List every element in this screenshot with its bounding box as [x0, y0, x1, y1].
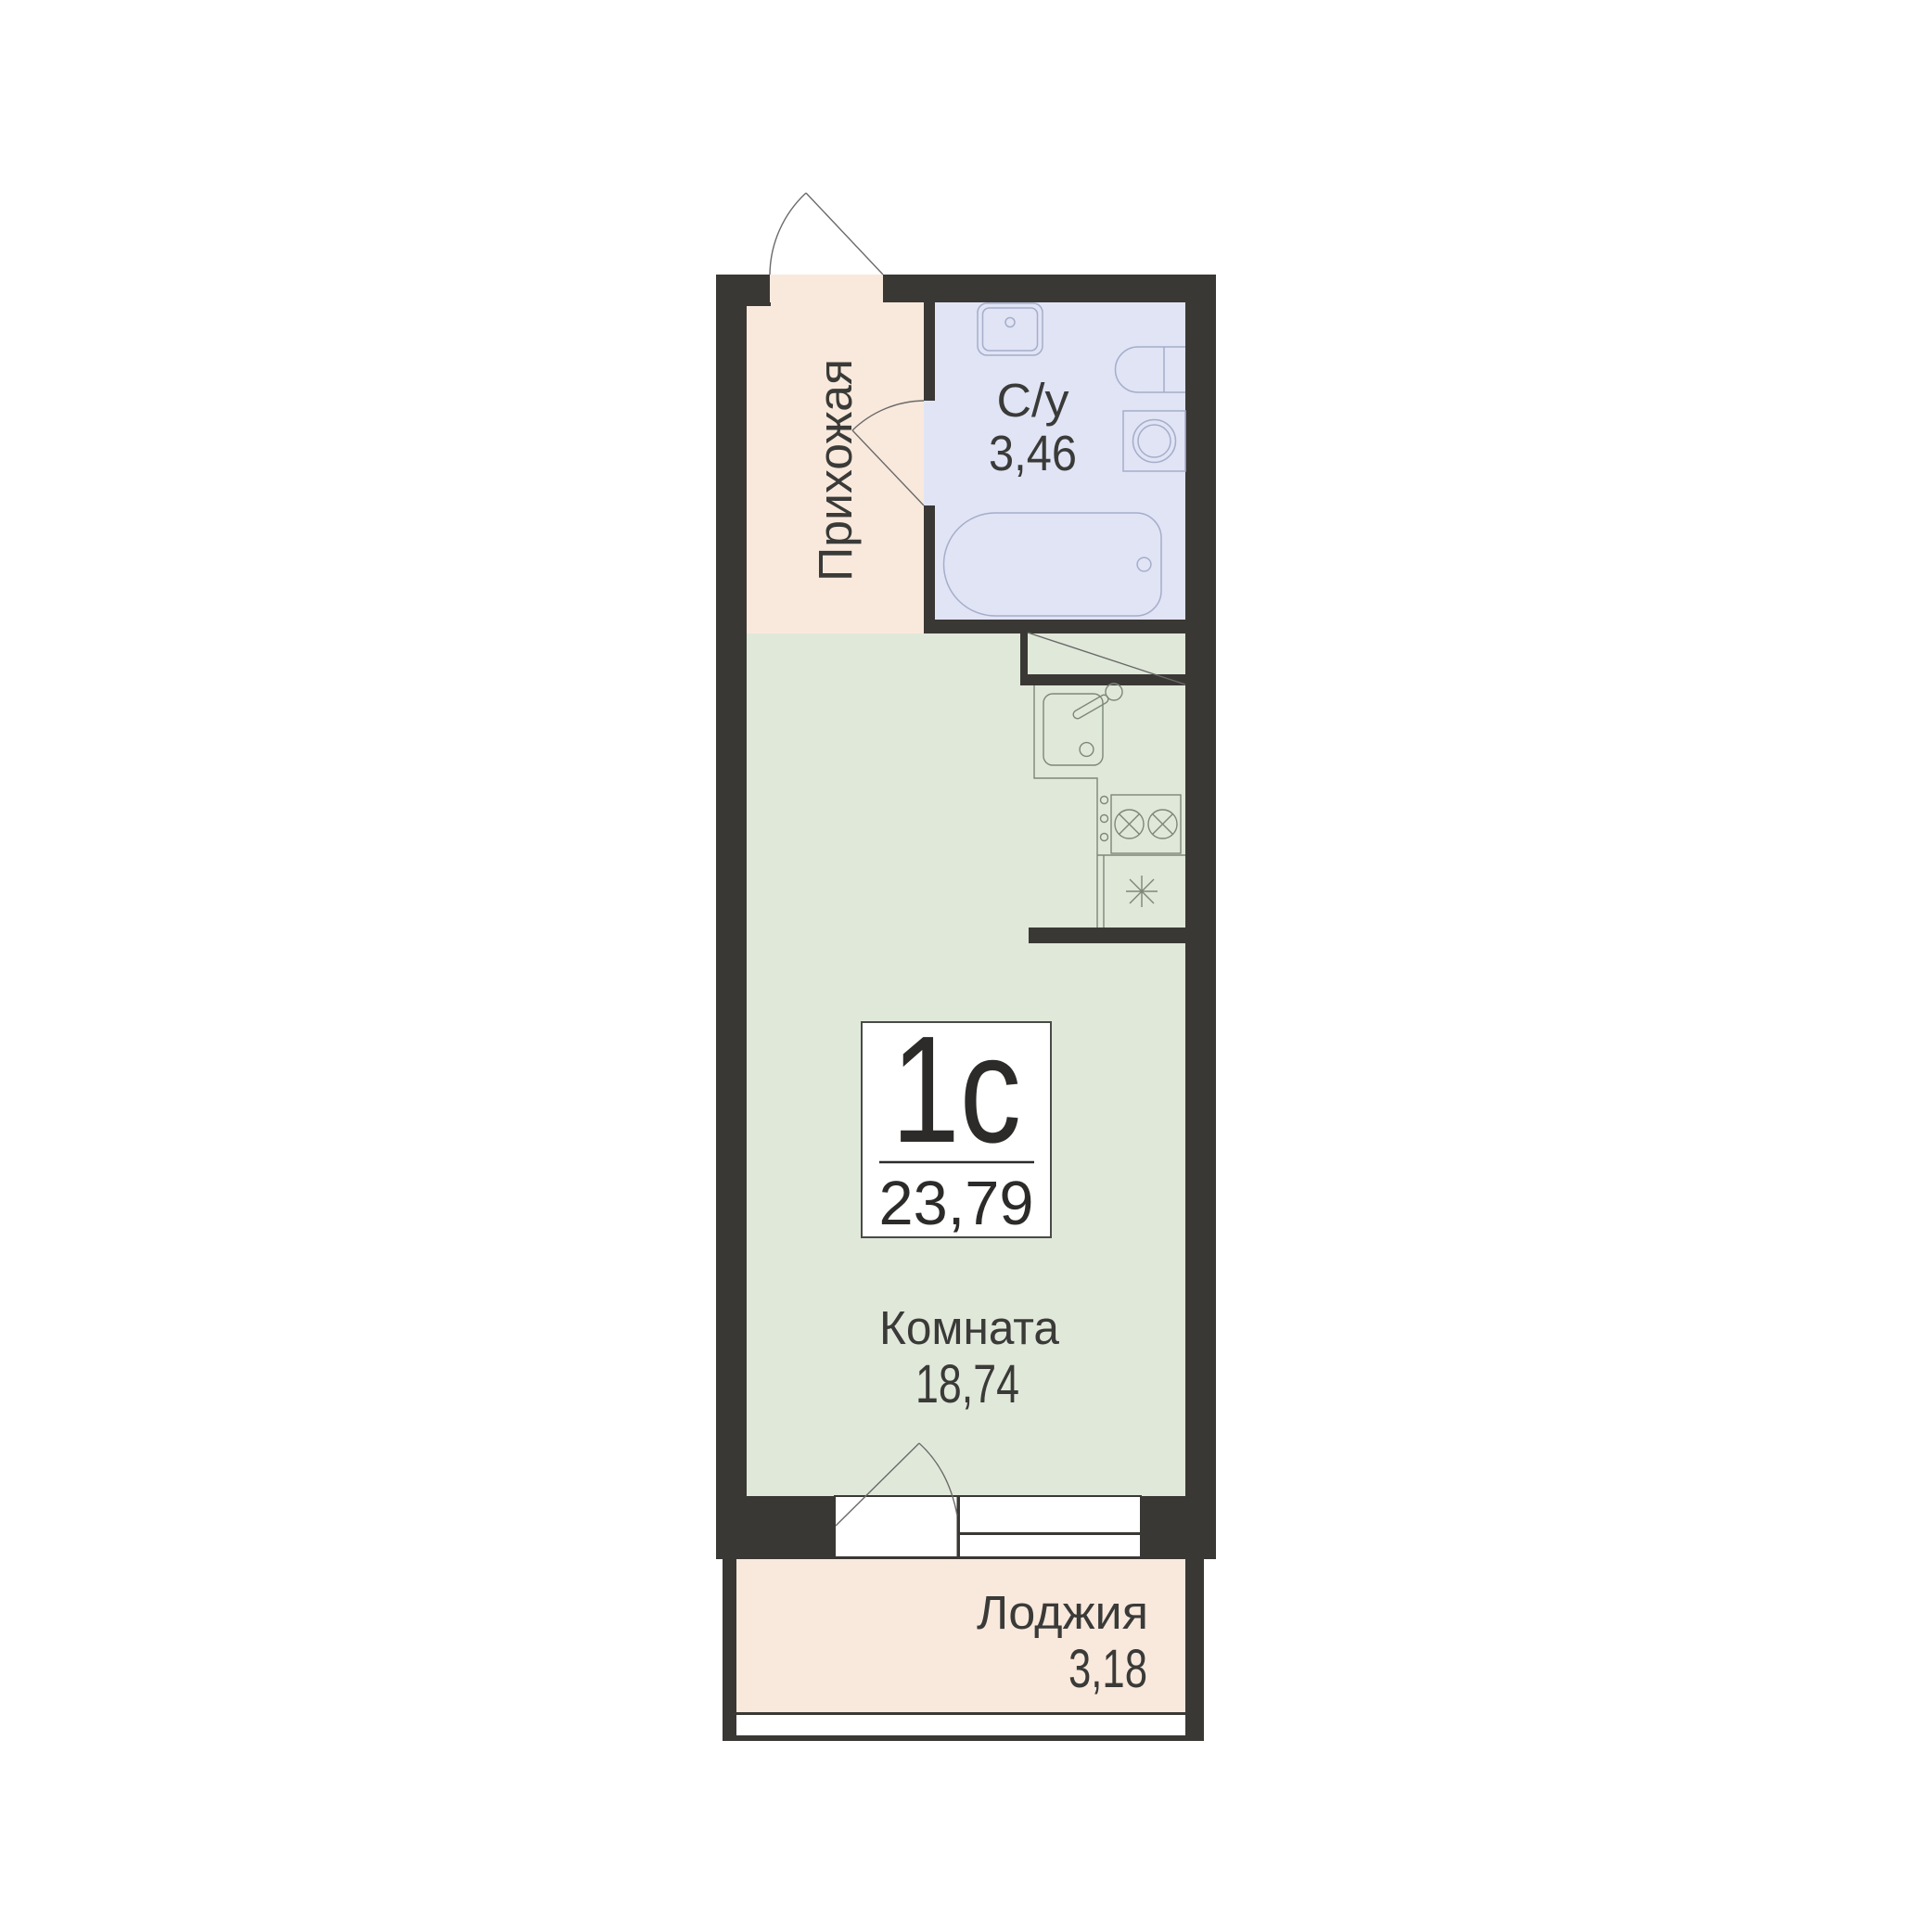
- svg-text:Прихожая: Прихожая: [809, 359, 862, 582]
- svg-text:3,18: 3,18: [1068, 1639, 1147, 1699]
- svg-text:1с: 1с: [891, 1004, 1021, 1174]
- svg-text:18,74: 18,74: [915, 1354, 1019, 1414]
- svg-text:3,46: 3,46: [989, 426, 1077, 481]
- svg-text:23,79: 23,79: [879, 1169, 1034, 1238]
- svg-text:Комната: Комната: [879, 1301, 1060, 1354]
- svg-text:Лоджия: Лоджия: [977, 1586, 1148, 1639]
- svg-text:С/у: С/у: [997, 374, 1070, 427]
